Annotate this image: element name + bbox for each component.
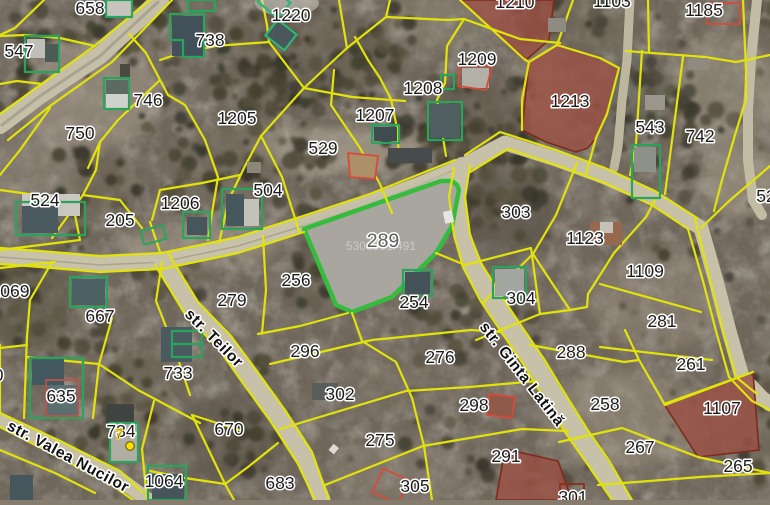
svg-text:261: 261 <box>676 354 705 374</box>
svg-text:635: 635 <box>46 386 75 406</box>
svg-text:529: 529 <box>308 138 337 158</box>
svg-text:258: 258 <box>590 394 619 414</box>
svg-text:275: 275 <box>365 430 394 450</box>
svg-text:750: 750 <box>65 123 94 143</box>
svg-text:305: 305 <box>400 476 429 496</box>
svg-text:265: 265 <box>723 456 752 476</box>
svg-text:543: 543 <box>635 117 664 137</box>
svg-text:7: 7 <box>115 426 123 443</box>
svg-text:279: 279 <box>217 290 246 310</box>
svg-text:658: 658 <box>75 0 104 18</box>
svg-text:1213: 1213 <box>551 91 590 111</box>
svg-text:301: 301 <box>558 487 587 500</box>
svg-text:1207: 1207 <box>356 105 395 125</box>
svg-text:254: 254 <box>399 292 428 312</box>
svg-text:291: 291 <box>491 446 520 466</box>
svg-text:504: 504 <box>253 180 282 200</box>
svg-text:1070: 1070 <box>0 365 4 385</box>
svg-text:205: 205 <box>105 210 134 230</box>
svg-text:298: 298 <box>459 395 488 415</box>
svg-text:1206: 1206 <box>161 193 200 213</box>
svg-text:281: 281 <box>647 311 676 331</box>
svg-text:1064: 1064 <box>145 471 184 491</box>
svg-text:1209: 1209 <box>458 49 497 69</box>
svg-text:742: 742 <box>685 126 714 146</box>
svg-text:1208: 1208 <box>404 78 443 98</box>
svg-text:1103: 1103 <box>593 0 631 11</box>
svg-text:1109: 1109 <box>626 261 664 281</box>
svg-text:524: 524 <box>30 190 59 210</box>
svg-text:1123: 1123 <box>566 228 604 248</box>
svg-text:267: 267 <box>625 437 654 457</box>
svg-text:738: 738 <box>195 30 224 50</box>
svg-text:683: 683 <box>265 473 294 493</box>
svg-text:52: 52 <box>756 186 770 206</box>
svg-text:296: 296 <box>290 341 319 361</box>
svg-text:288: 288 <box>556 342 585 362</box>
svg-text:303: 303 <box>501 202 530 222</box>
svg-text:670: 670 <box>214 419 243 439</box>
svg-text:667: 667 <box>85 306 114 326</box>
svg-text:304: 304 <box>506 288 535 308</box>
svg-text:1069: 1069 <box>0 281 29 301</box>
svg-text:302: 302 <box>325 384 354 404</box>
svg-text:1185: 1185 <box>685 0 723 20</box>
svg-text:289: 289 <box>367 230 400 252</box>
svg-text:1220: 1220 <box>272 5 311 25</box>
svg-text:1107: 1107 <box>703 398 741 418</box>
svg-text:1210: 1210 <box>496 0 535 12</box>
svg-text:547: 547 <box>4 41 33 61</box>
svg-text:733: 733 <box>163 363 192 383</box>
svg-text:746: 746 <box>133 90 162 110</box>
svg-text:256: 256 <box>281 270 310 290</box>
svg-text:276: 276 <box>425 347 454 367</box>
svg-text:1205: 1205 <box>218 108 257 128</box>
